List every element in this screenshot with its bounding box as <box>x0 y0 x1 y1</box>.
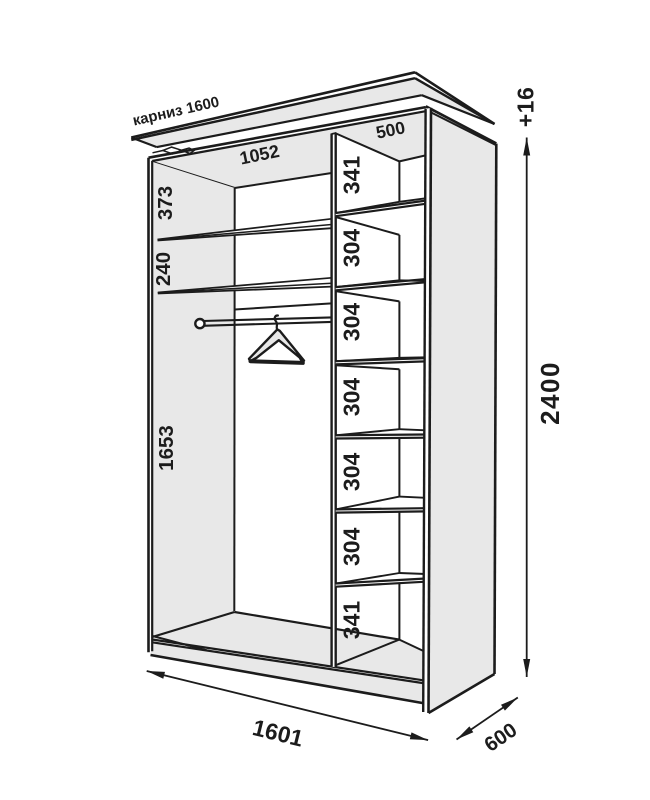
svg-text:+16: +16 <box>513 87 539 128</box>
svg-text:341: 341 <box>339 156 365 195</box>
svg-text:2400: 2400 <box>535 361 565 425</box>
svg-text:373: 373 <box>154 186 177 220</box>
svg-text:304: 304 <box>339 303 365 342</box>
svg-text:304: 304 <box>339 378 365 417</box>
svg-text:304: 304 <box>339 453 365 492</box>
svg-text:341: 341 <box>339 601 365 640</box>
svg-text:240: 240 <box>152 252 175 286</box>
svg-text:304: 304 <box>339 527 365 566</box>
svg-text:1653: 1653 <box>155 425 178 471</box>
svg-text:304: 304 <box>339 229 365 268</box>
